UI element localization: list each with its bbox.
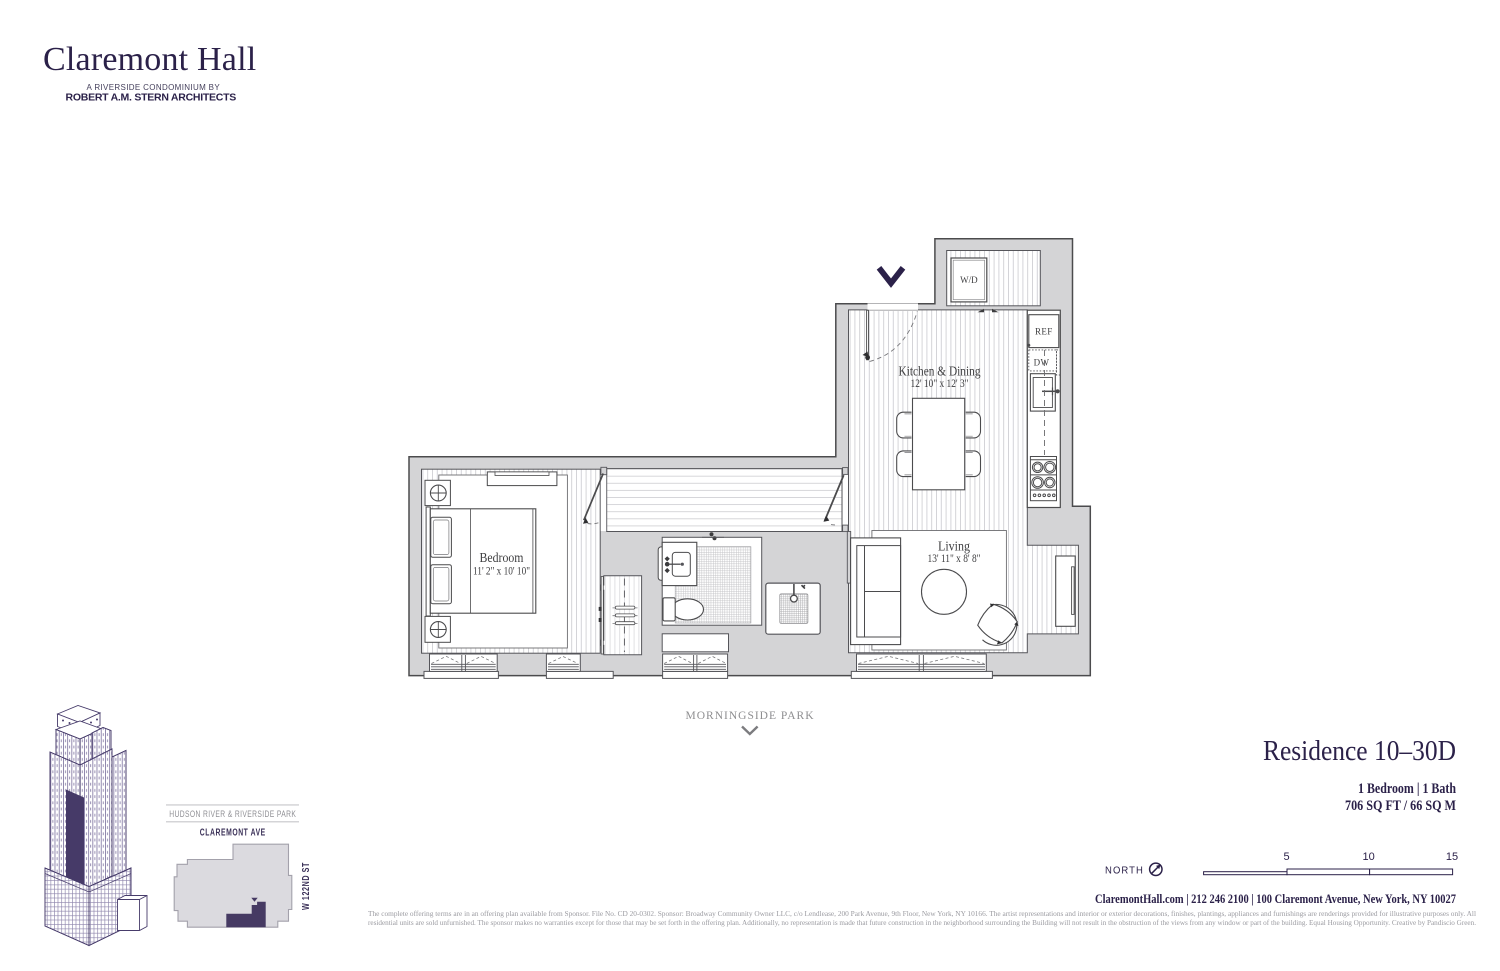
svg-text:MORNINGSIDE PARK: MORNINGSIDE PARK [686, 710, 815, 722]
svg-text:REF: REF [1035, 327, 1053, 337]
svg-text:W/D: W/D [960, 275, 978, 285]
svg-text:DW: DW [1034, 358, 1050, 368]
svg-text:HUDSON RIVER & RIVERSIDE PARK: HUDSON RIVER & RIVERSIDE PARK [169, 809, 296, 819]
svg-text:706 SQ FT / 66 SQ M: 706 SQ FT / 66 SQ M [1345, 798, 1456, 814]
svg-text:10: 10 [1362, 851, 1374, 863]
svg-text:CLAREMONT AVE: CLAREMONT AVE [200, 828, 266, 839]
svg-text:residential units are sold unf: residential units are sold unfurnished. … [368, 919, 1476, 927]
svg-text:12' 10" x 12' 3": 12' 10" x 12' 3" [911, 378, 969, 390]
svg-text:Claremont Hall: Claremont Hall [43, 41, 256, 78]
svg-text:5: 5 [1283, 851, 1289, 863]
svg-text:ClaremontHall.com | 212 246 21: ClaremontHall.com | 212 246 2100 | 100 C… [1095, 892, 1456, 906]
svg-text:1 Bedroom | 1 Bath: 1 Bedroom | 1 Bath [1358, 781, 1457, 797]
svg-text:Bedroom: Bedroom [480, 551, 524, 566]
svg-text:The complete offering terms ar: The complete offering terms are in an of… [368, 910, 1476, 918]
svg-text:W 122ND ST: W 122ND ST [301, 862, 312, 910]
svg-text:Residence 10–30D: Residence 10–30D [1263, 735, 1456, 767]
svg-text:ROBERT A.M. STERN ARCHITECTS: ROBERT A.M. STERN ARCHITECTS [66, 92, 237, 104]
svg-text:11' 2" x 10' 10": 11' 2" x 10' 10" [473, 566, 530, 578]
svg-text:13' 11" x 8' 8": 13' 11" x 8' 8" [928, 553, 981, 565]
svg-text:NORTH: NORTH [1105, 865, 1144, 877]
svg-text:15: 15 [1446, 851, 1458, 863]
